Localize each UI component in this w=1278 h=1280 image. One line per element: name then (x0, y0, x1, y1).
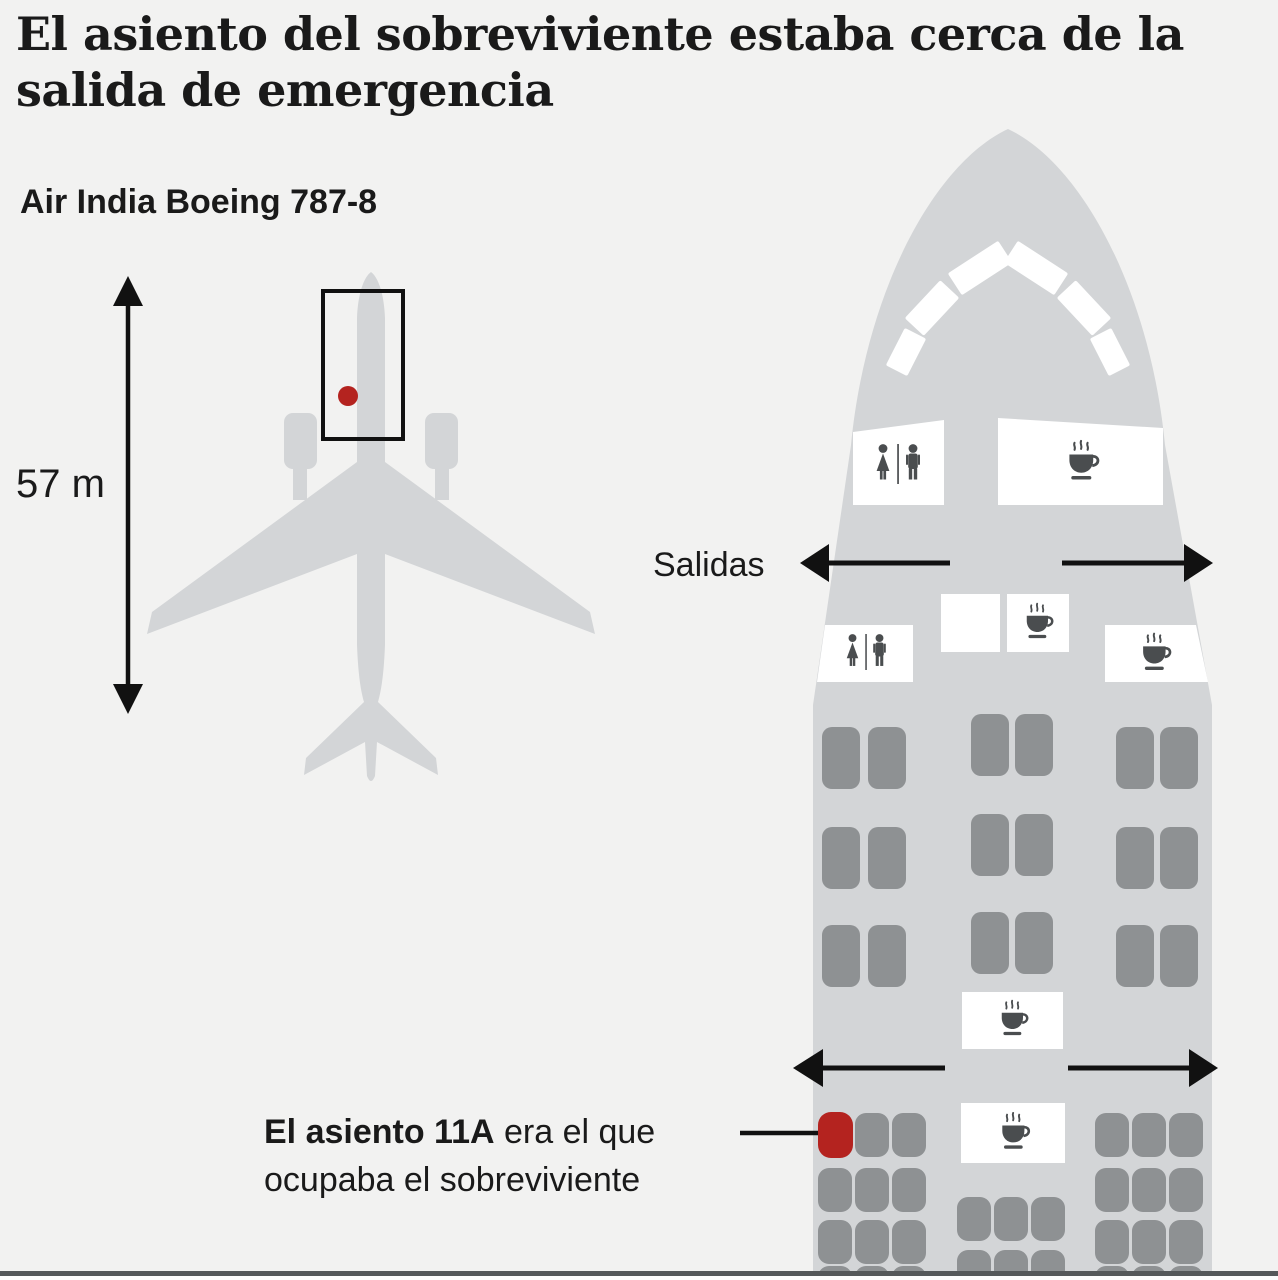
seat (822, 727, 860, 789)
seat (1169, 1220, 1203, 1264)
seat (971, 814, 1009, 876)
seat (855, 1113, 889, 1157)
seat (1095, 1168, 1129, 1212)
seat-note: El asiento 11A era el queocupaba el sobr… (264, 1108, 655, 1205)
seat (1015, 912, 1053, 974)
seat-11a (818, 1112, 853, 1158)
aircraft-label: Air India Boeing 787-8 (20, 183, 377, 222)
seatmap-fuselage (813, 129, 1212, 1272)
seat (1116, 727, 1154, 789)
seat (1169, 1168, 1203, 1212)
plane-silhouette (147, 272, 595, 781)
seat (1132, 1220, 1166, 1264)
seat (892, 1220, 926, 1264)
seat (868, 827, 906, 889)
seat (1169, 1113, 1203, 1157)
seat (868, 925, 906, 987)
seat (868, 727, 906, 789)
seat (1116, 827, 1154, 889)
seat (855, 1168, 889, 1212)
seat (957, 1197, 991, 1241)
seat (1160, 925, 1198, 987)
seat (892, 1168, 926, 1212)
seat (818, 1168, 852, 1212)
vertical-measure-arrow-icon (113, 276, 143, 714)
seat (822, 827, 860, 889)
seat (822, 925, 860, 987)
seat (1015, 714, 1053, 776)
seat-note-line2: ocupaba el sobreviviente (264, 1161, 640, 1199)
seat (1095, 1113, 1129, 1157)
seat (1160, 827, 1198, 889)
page-title: El asiento del sobreviviente estaba cerc… (16, 6, 1196, 118)
seat (971, 912, 1009, 974)
seat (818, 1220, 852, 1264)
seat (1132, 1113, 1166, 1157)
bottom-margin (0, 1276, 1278, 1280)
seat (892, 1113, 926, 1157)
seat-note-after: era el que (495, 1113, 656, 1151)
bottom-bar (0, 1271, 1278, 1276)
storage-block (941, 594, 1000, 652)
exits-label: Salidas (653, 546, 765, 585)
seat (1031, 1197, 1065, 1241)
right-engine-pylon (435, 455, 449, 500)
seat (971, 714, 1009, 776)
infographic: El asiento del sobreviviente estaba cerc… (0, 0, 1278, 1280)
seat (1015, 814, 1053, 876)
seat (1160, 727, 1198, 789)
seat (1095, 1220, 1129, 1264)
plane-body (147, 272, 595, 781)
seat (1132, 1168, 1166, 1212)
left-engine-pylon (293, 455, 307, 500)
seat-location-dot (338, 386, 358, 406)
seat (994, 1197, 1028, 1241)
seat (1116, 925, 1154, 987)
length-label: 57 m (16, 462, 105, 507)
seat-note-bold: El asiento 11A (264, 1113, 495, 1151)
lavatory-block-2 (817, 625, 913, 682)
seat (855, 1220, 889, 1264)
